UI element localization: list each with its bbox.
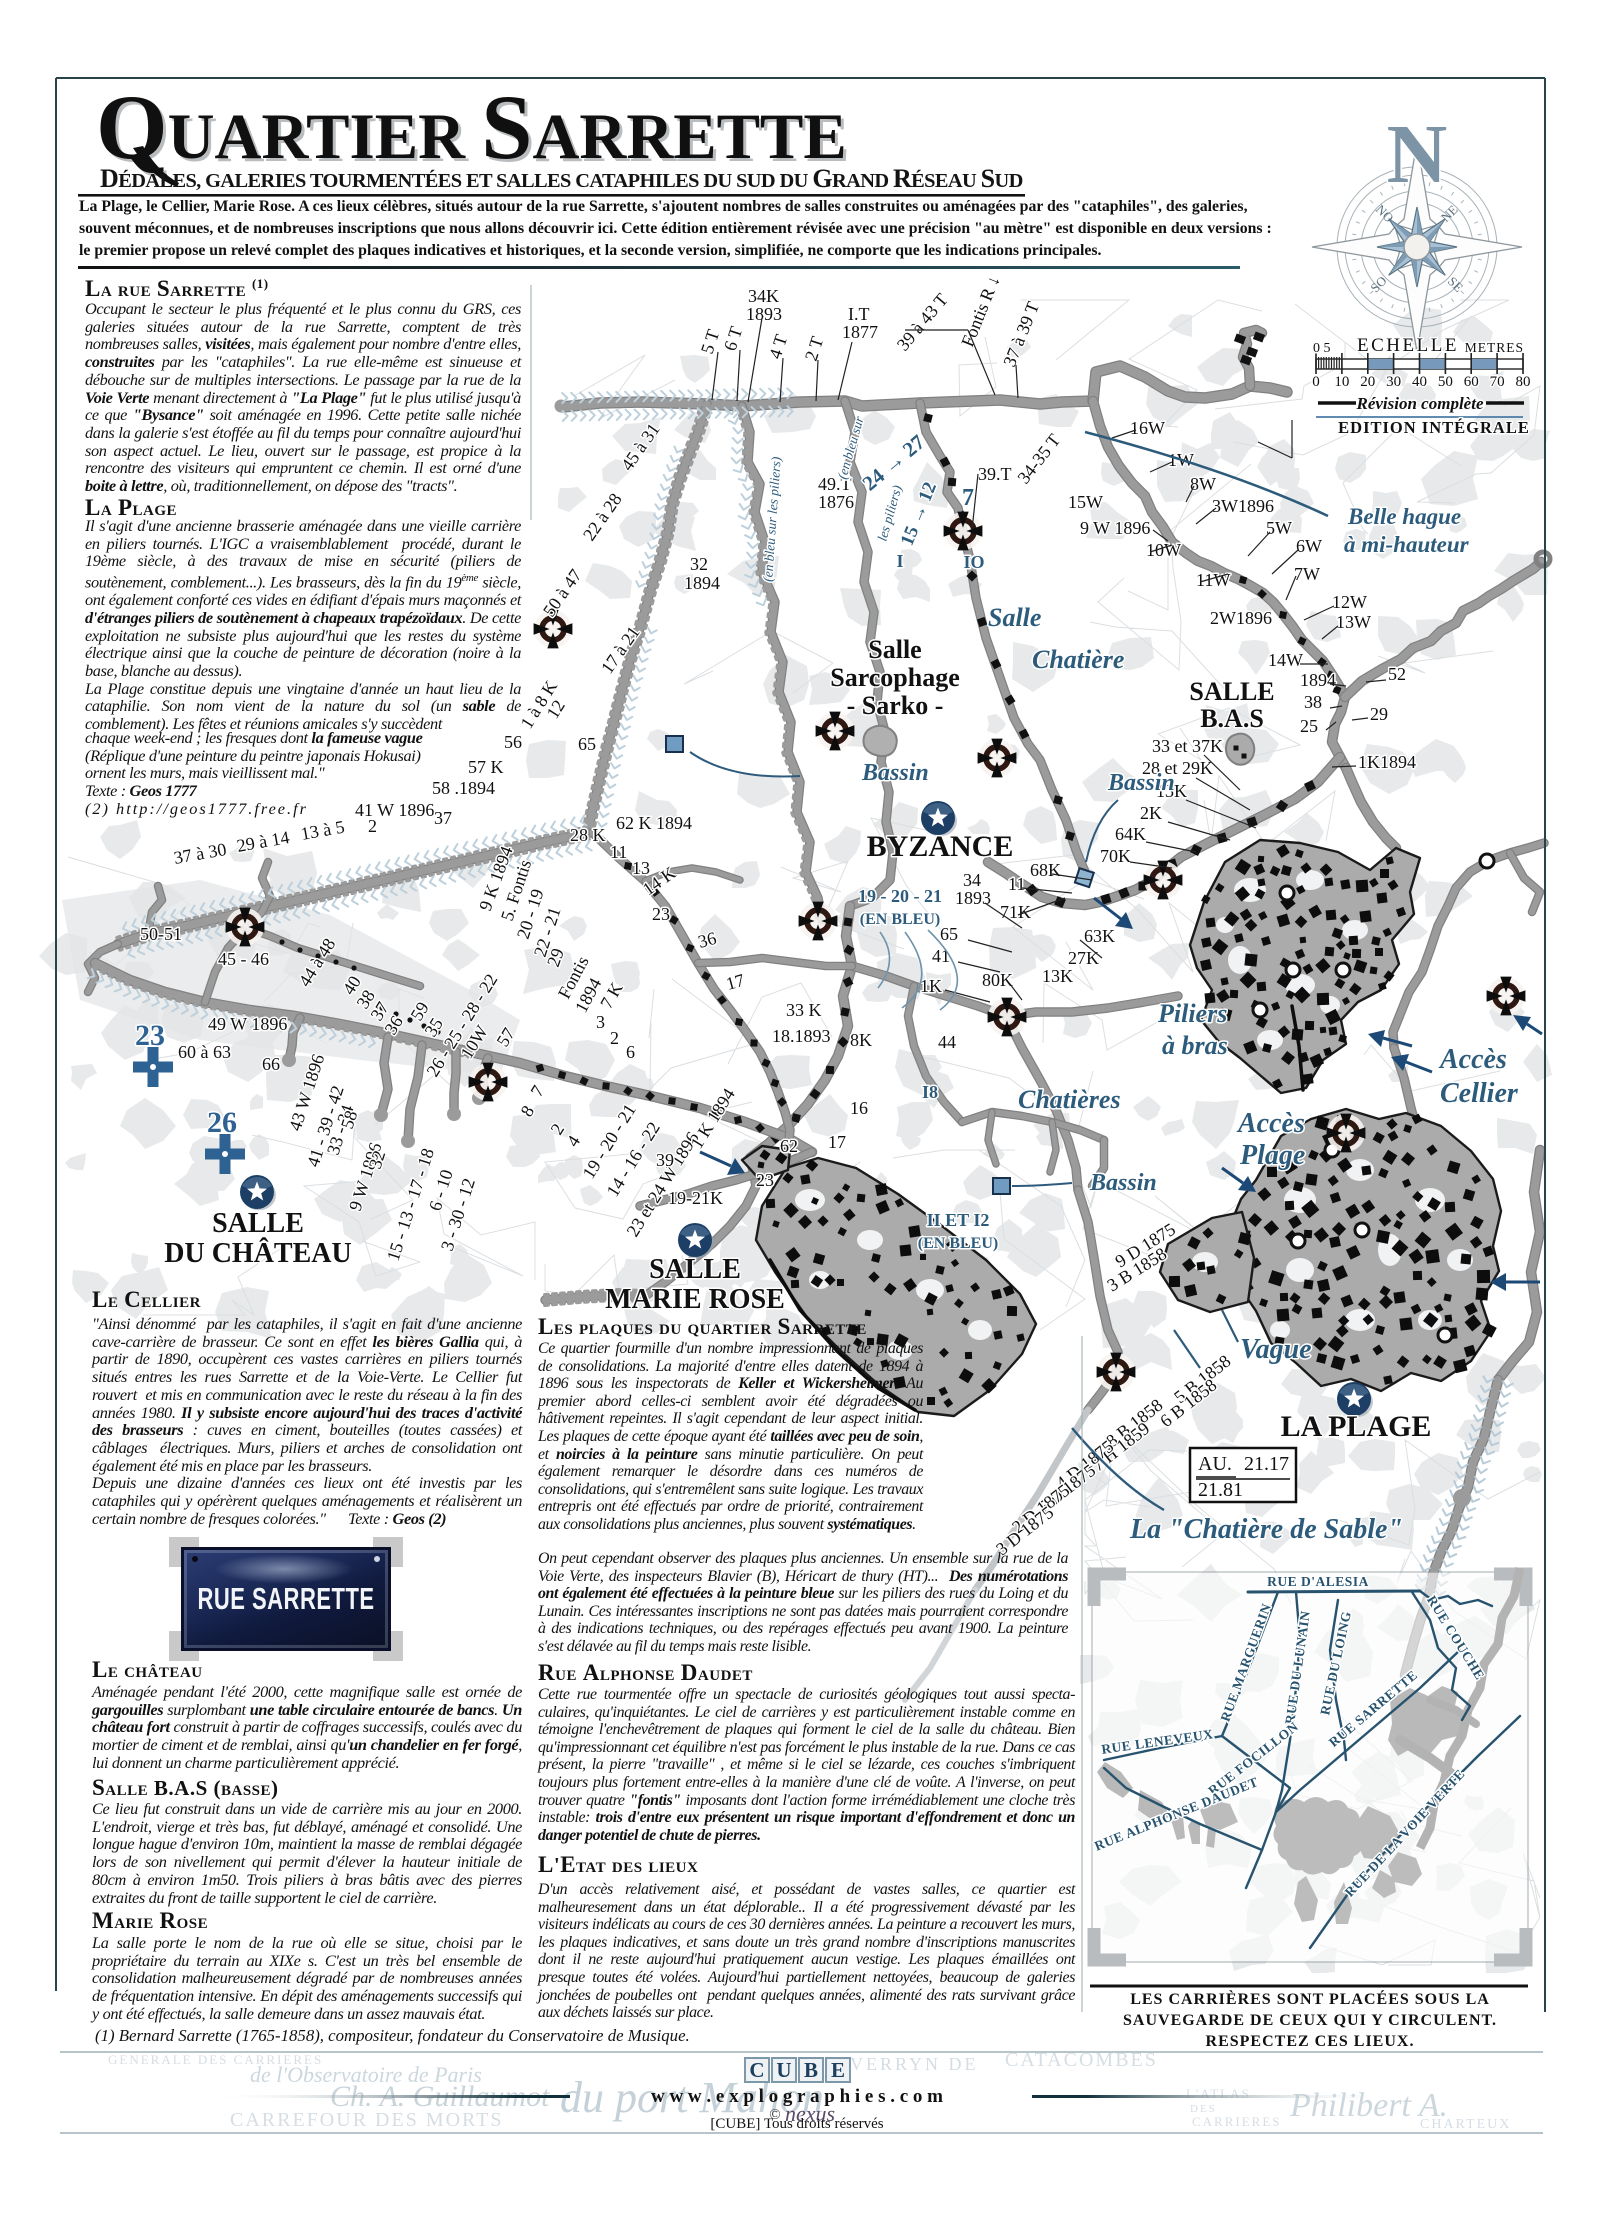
svg-text:29: 29 <box>1370 704 1388 724</box>
svg-text:Cellier: Cellier <box>1440 1078 1519 1109</box>
svg-text:METRES: METRES <box>1465 340 1524 355</box>
svg-text:39: 39 <box>656 1150 674 1170</box>
svg-text:20: 20 <box>1360 374 1375 390</box>
svg-text:60: 60 <box>1464 374 1479 390</box>
svg-text:[CUBE] Tous droits réservés: [CUBE] Tous droits réservés <box>710 2116 883 2132</box>
svg-text:1877: 1877 <box>842 322 878 342</box>
svg-text:SE: SE <box>1445 274 1466 295</box>
svg-text:68K: 68K <box>1030 860 1061 880</box>
svg-text:62 K 1894: 62 K 1894 <box>616 813 692 833</box>
svg-text:L'ATLAS: L'ATLAS <box>1186 2086 1251 2101</box>
svg-text:1893: 1893 <box>746 304 782 324</box>
svg-text:QUARTIER SARRETTE: QUARTIER SARRETTE <box>96 76 847 178</box>
svg-text:B.A.S: B.A.S <box>1200 704 1264 733</box>
svg-text:5W: 5W <box>1266 518 1292 538</box>
svg-text:SALLE: SALLE <box>212 1208 304 1239</box>
svg-text:11W: 11W <box>1196 570 1230 590</box>
svg-text:23: 23 <box>652 904 670 924</box>
svg-text:Vague: Vague <box>1240 1334 1312 1365</box>
svg-text:14W: 14W <box>1268 650 1303 670</box>
svg-text:9 W 1896: 9 W 1896 <box>1080 518 1150 538</box>
svg-text:8K: 8K <box>850 1030 872 1050</box>
svg-text:Bassin: Bassin <box>861 760 929 786</box>
svg-text:La "Chatière de Sable": La "Chatière de Sable" <box>1129 1514 1403 1545</box>
svg-text:0 5: 0 5 <box>1313 341 1331 356</box>
svg-text:13: 13 <box>632 858 650 878</box>
svg-text:CATACOMBES: CATACOMBES <box>1005 2049 1158 2071</box>
svg-text:33 et 37K: 33 et 37K <box>1152 736 1223 756</box>
svg-text:50-51: 50-51 <box>140 924 182 944</box>
svg-text:64K: 64K <box>1115 824 1146 844</box>
svg-text:18.1893: 18.1893 <box>772 1026 831 1046</box>
svg-text:11: 11 <box>1008 874 1025 894</box>
svg-text:BYZANCE: BYZANCE <box>867 830 1014 863</box>
svg-text:Sarcophage: Sarcophage <box>830 663 960 692</box>
svg-text:6W: 6W <box>1296 536 1322 556</box>
svg-text:MARIE ROSE: MARIE ROSE <box>605 1284 785 1315</box>
svg-text:70: 70 <box>1490 374 1505 390</box>
svg-text:Accès: Accès <box>1236 1108 1305 1139</box>
svg-text:19-21K: 19-21K <box>668 1188 723 1208</box>
svg-text:21.17: 21.17 <box>1244 1453 1289 1475</box>
svg-text:40: 40 <box>1412 374 1427 390</box>
svg-text:44: 44 <box>938 1032 956 1052</box>
svg-text:39.T: 39.T <box>978 464 1012 484</box>
svg-text:2: 2 <box>610 1028 619 1048</box>
svg-text:Bassin: Bassin <box>1089 1170 1157 1196</box>
svg-text:B: B <box>804 2058 818 2082</box>
svg-text:60 à 63: 60 à 63 <box>178 1042 231 1062</box>
svg-text:(en bleu sur les piliers): (en bleu sur les piliers) <box>760 456 784 582</box>
svg-text:25: 25 <box>1300 716 1318 736</box>
svg-text:16W: 16W <box>1130 418 1165 438</box>
svg-text:Piliers: Piliers <box>1157 999 1227 1028</box>
svg-text:7: 7 <box>962 485 974 511</box>
svg-text:13K: 13K <box>1042 966 1073 986</box>
svg-text:1K1894: 1K1894 <box>1358 752 1416 772</box>
svg-text:38: 38 <box>1304 692 1322 712</box>
svg-text:(EN BLEU): (EN BLEU) <box>918 1235 998 1252</box>
svg-text:Bassin: Bassin <box>1107 770 1175 796</box>
svg-text:32: 32 <box>690 554 708 574</box>
svg-text:11: 11 <box>610 842 627 862</box>
svg-text:17: 17 <box>724 970 747 994</box>
svg-text:SAUVEGARDE DE CEUX QUI Y CIRCU: SAUVEGARDE DE CEUX QUI Y CIRCULENT. <box>1123 2012 1497 2029</box>
svg-text:Salle: Salle <box>988 603 1041 632</box>
svg-text:3W1896: 3W1896 <box>1212 496 1274 516</box>
svg-text:(EN BLEU): (EN BLEU) <box>860 911 940 928</box>
svg-text:IO: IO <box>963 552 984 572</box>
svg-text:Philibert A.: Philibert A. <box>1289 2087 1448 2124</box>
svg-text:N: N <box>1387 108 1448 201</box>
svg-text:6: 6 <box>626 1042 635 1062</box>
svg-text:C: C <box>749 2058 764 2082</box>
svg-text:4 T: 4 T <box>765 332 791 361</box>
svg-text:Fontis R ↓: Fontis R ↓ <box>957 272 1004 349</box>
svg-text:AU.: AU. <box>1198 1453 1232 1475</box>
svg-text:33 K: 33 K <box>786 1000 822 1020</box>
svg-text:Salle: Salle <box>868 635 921 664</box>
svg-text:49 W 1896: 49 W 1896 <box>208 1014 287 1034</box>
svg-text:50: 50 <box>1438 374 1453 390</box>
svg-text:Révision complète: Révision complète <box>1355 394 1483 413</box>
svg-text:de l'Observatoire de Paris: de l'Observatoire de Paris <box>250 2062 482 2087</box>
svg-text:66: 66 <box>262 1054 280 1074</box>
svg-text:80K: 80K <box>982 970 1013 990</box>
svg-text:50 à 47: 50 à 47 <box>539 565 586 620</box>
svg-text:8W: 8W <box>1190 474 1216 494</box>
svg-text:Belle hague: Belle hague <box>1347 504 1461 529</box>
svg-text:LA PLAGE: LA PLAGE <box>1281 1410 1432 1443</box>
svg-text:E: E <box>831 2058 845 2082</box>
svg-text:30: 30 <box>1386 374 1401 390</box>
svg-text:41: 41 <box>932 946 950 966</box>
svg-text:63K: 63K <box>1084 926 1115 946</box>
svg-text:17: 17 <box>828 1132 846 1152</box>
svg-text:SO: SO <box>1367 273 1389 295</box>
svg-text:souvent méconnues, et de nombr: souvent méconnues, et de nombreuses insc… <box>79 220 1272 237</box>
svg-text:12W: 12W <box>1332 592 1367 612</box>
svg-text:le premier propose un relevé c: le premier propose un relevé complet des… <box>79 242 1102 259</box>
svg-text:15W: 15W <box>1068 492 1103 512</box>
svg-text:4: 4 <box>562 1132 584 1150</box>
svg-text:13 à 5: 13 à 5 <box>299 817 346 844</box>
svg-text:1894: 1894 <box>1300 670 1336 690</box>
svg-text:Accès: Accès <box>1438 1044 1507 1075</box>
svg-text:7W: 7W <box>1294 564 1320 584</box>
svg-text:La Plage, le Cellier, Marie Ro: La Plage, le Cellier, Marie Rose. A ces … <box>79 198 1248 215</box>
svg-text:RESPECTEZ CES LIEUX.: RESPECTEZ CES LIEUX. <box>1206 2033 1415 2050</box>
svg-text:1894: 1894 <box>684 573 720 593</box>
svg-text:37 à 30: 37 à 30 <box>172 839 228 868</box>
svg-text:39 à 43 T: 39 à 43 T <box>893 289 952 354</box>
svg-text:1K: 1K <box>920 976 942 996</box>
svg-text:2 T: 2 T <box>801 334 827 363</box>
svg-text:Chatière: Chatière <box>1032 645 1124 674</box>
svg-text:U: U <box>776 2058 791 2082</box>
svg-text:23: 23 <box>135 1019 165 1052</box>
svg-text:34K: 34K <box>748 286 779 306</box>
svg-text:34: 34 <box>963 870 981 890</box>
svg-text:10W: 10W <box>1146 540 1181 560</box>
svg-text:(en bleu sur: (en bleu sur <box>834 414 866 481</box>
svg-text:I8: I8 <box>922 1082 938 1102</box>
svg-text:7: 7 <box>526 1082 548 1100</box>
svg-text:13W: 13W <box>1336 612 1371 632</box>
svg-text:19 - 20 - 21: 19 - 20 - 21 <box>858 886 942 906</box>
svg-text:80: 80 <box>1516 374 1531 390</box>
svg-text:29 à 14: 29 à 14 <box>235 827 291 856</box>
svg-text:0: 0 <box>1312 374 1320 390</box>
svg-text:- Sarko -: - Sarko - <box>847 691 944 720</box>
svg-text:3: 3 <box>596 1012 605 1032</box>
svg-text:65: 65 <box>940 924 958 944</box>
svg-text:CARRIERES: CARRIERES <box>1192 2114 1282 2129</box>
svg-text:DU CHÂTEAU: DU CHÂTEAU <box>164 1238 351 1269</box>
svg-text:37 à 39 T: 37 à 39 T <box>999 299 1043 370</box>
svg-text:52: 52 <box>1388 664 1406 684</box>
svg-text:16: 16 <box>850 1098 868 1118</box>
svg-text:65: 65 <box>578 734 596 754</box>
svg-text:Chatières: Chatières <box>1018 1085 1121 1114</box>
svg-text:à mi-hauteur: à mi-hauteur <box>1344 532 1470 557</box>
svg-text:26: 26 <box>207 1106 237 1139</box>
svg-text:45 - 46: 45 - 46 <box>218 949 269 969</box>
svg-text:Plage: Plage <box>1239 1140 1305 1171</box>
svg-text:23: 23 <box>756 1170 774 1190</box>
svg-text:1876: 1876 <box>818 492 854 512</box>
svg-text:2K: 2K <box>1140 803 1162 823</box>
svg-text:ECHELLE: ECHELLE <box>1357 335 1459 356</box>
svg-text:34-35 T: 34-35 T <box>1013 430 1064 487</box>
svg-text:à bras: à bras <box>1162 1031 1228 1060</box>
svg-text:SALLE: SALLE <box>649 1254 741 1285</box>
svg-text:56: 56 <box>504 732 522 752</box>
svg-text:28 K: 28 K <box>570 825 606 845</box>
svg-text:I: I <box>896 551 903 571</box>
svg-text:EDITION INTÉGRALE: EDITION INTÉGRALE <box>1338 418 1530 437</box>
svg-text:70K: 70K <box>1100 846 1131 866</box>
svg-text:21.81: 21.81 <box>1198 1479 1243 1501</box>
svg-text:2: 2 <box>368 816 377 836</box>
svg-text:I.T: I.T <box>848 304 870 324</box>
svg-text:LES CARRIÈRES SONT PLACÉES SOU: LES CARRIÈRES SONT PLACÉES SOUS LA <box>1130 1989 1490 2008</box>
svg-text:2W1896: 2W1896 <box>1210 608 1272 628</box>
svg-text:RUE D'ALESIA: RUE D'ALESIA <box>1267 1574 1369 1589</box>
svg-text:62: 62 <box>780 1136 798 1156</box>
svg-text:1893: 1893 <box>955 888 991 908</box>
svg-text:II ET I2: II ET I2 <box>927 1210 990 1230</box>
svg-text:6 T: 6 T <box>720 324 746 353</box>
svg-text:5 T: 5 T <box>697 327 723 356</box>
svg-text:SALLE: SALLE <box>1189 677 1274 706</box>
svg-text:10: 10 <box>1334 374 1349 390</box>
svg-text:VERRYN DE: VERRYN DE <box>850 2054 979 2074</box>
